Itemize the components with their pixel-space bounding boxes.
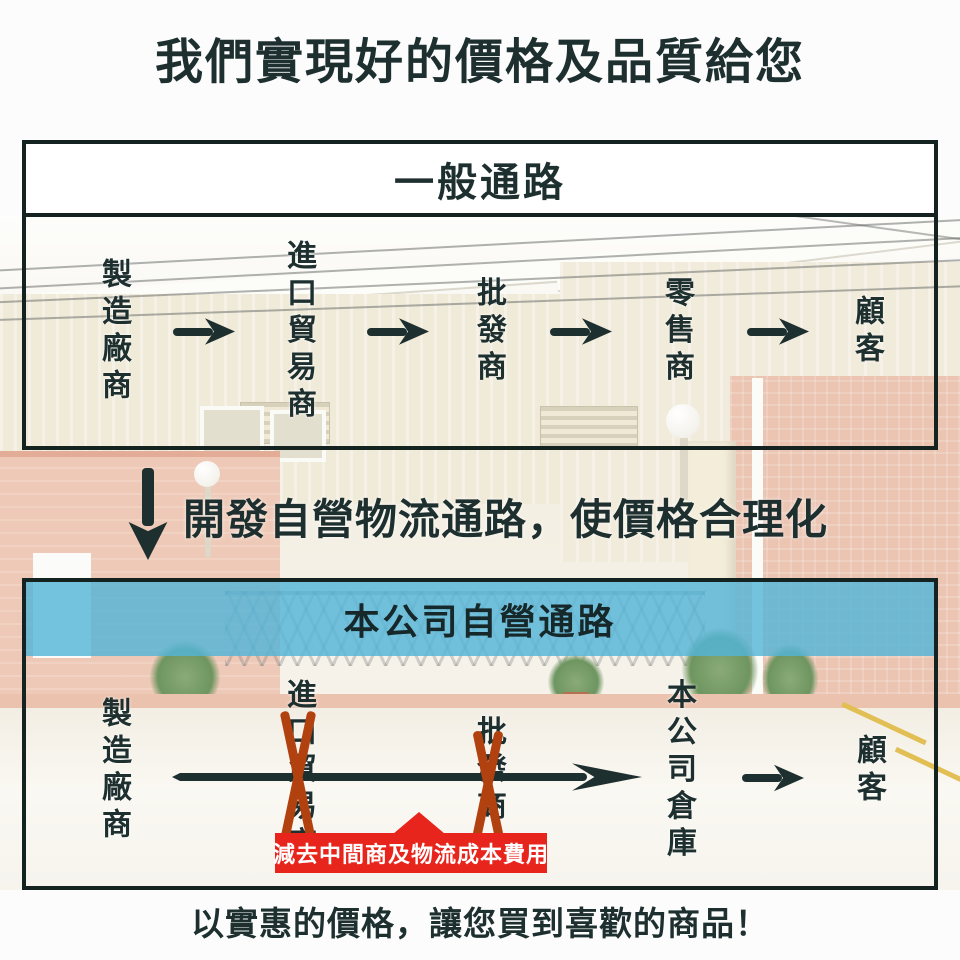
page-title: 我們實現好的價格及品質給您 bbox=[0, 22, 960, 92]
node-retailer: 零售商 bbox=[661, 276, 691, 387]
right-arrow-icon bbox=[173, 317, 235, 347]
general-channel-header: 一般通路 bbox=[26, 144, 934, 217]
down-arrow-icon bbox=[126, 468, 170, 560]
cost-saving-banner: 減去中間商及物流成本費用 bbox=[275, 833, 547, 873]
pricing-infographic: 我們實現好的價格及品質給您 一般通路 製造廠商 進口貿易商 批發商 零售商 顧客… bbox=[0, 0, 960, 960]
transition-section: 開發自營物流通路，使價格合理化 bbox=[0, 462, 960, 562]
cross-out-icon bbox=[278, 710, 318, 844]
right-arrow-icon bbox=[550, 317, 612, 347]
node-customer: 顧客 bbox=[851, 295, 881, 369]
own-channel-header: 本公司自營通路 bbox=[26, 582, 934, 656]
node-manufacturer: 製造廠商 bbox=[98, 697, 128, 845]
footer-note: 以實惠的價格，讓您買到喜歡的商品！ bbox=[0, 897, 960, 945]
node-manufacturer: 製造廠商 bbox=[98, 258, 128, 406]
bypass-arrow-icon bbox=[172, 759, 642, 795]
own-channel-box: 本公司自營通路 製造廠商 進口貿易商 批發商 本公司倉庫 顧客 減去中間商及物流… bbox=[22, 578, 938, 890]
pointer-triangle-icon bbox=[393, 812, 445, 834]
right-arrow-icon bbox=[742, 763, 804, 793]
general-channel-flow: 製造廠商 進口貿易商 批發商 零售商 顧客 bbox=[26, 217, 934, 446]
node-customer: 顧客 bbox=[853, 734, 883, 808]
node-company-warehouse: 本公司倉庫 bbox=[663, 679, 693, 864]
cross-out-icon bbox=[468, 730, 508, 838]
node-import-trader: 進口貿易商 bbox=[283, 239, 313, 424]
transition-note: 開發自營物流通路，使價格合理化 bbox=[183, 486, 828, 547]
right-arrow-icon bbox=[367, 317, 429, 347]
node-wholesaler: 批發商 bbox=[473, 276, 503, 387]
own-channel-flow: 製造廠商 進口貿易商 批發商 本公司倉庫 顧客 減去中間商及物流成本費用 bbox=[26, 656, 934, 886]
general-channel-box: 一般通路 製造廠商 進口貿易商 批發商 零售商 顧客 bbox=[22, 140, 938, 450]
right-arrow-icon bbox=[747, 317, 809, 347]
